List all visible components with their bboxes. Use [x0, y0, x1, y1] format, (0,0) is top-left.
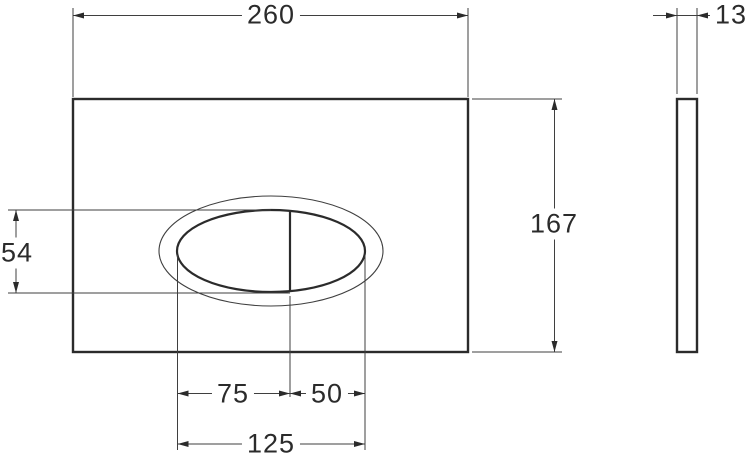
arrowhead-up [552, 99, 558, 110]
arrowhead-right [279, 391, 290, 397]
plate-height-label: 167 [525, 209, 583, 240]
arrowhead-left [178, 391, 189, 397]
arrowhead-down [13, 282, 19, 293]
plate-thickness-label: 13 [710, 0, 752, 31]
button-height-label: 54 [0, 238, 36, 269]
side-view [677, 99, 697, 352]
button-right-segment-label: 50 [306, 379, 348, 410]
plate-outline [73, 99, 468, 352]
dimension-plate-thickness [653, 8, 714, 94]
arrowhead-right [457, 13, 468, 19]
plate-side-outline [677, 99, 697, 352]
arrowhead-down [552, 341, 558, 352]
technical-drawing: 260 13 167 54 75 50 125 [0, 0, 752, 454]
button-total-width-label: 125 [242, 429, 300, 454]
arrowhead-left [73, 13, 84, 19]
arrowhead-left [178, 441, 189, 447]
arrowhead-right [354, 391, 365, 397]
arrowhead-left [290, 391, 301, 397]
button-left-segment-label: 75 [212, 379, 254, 410]
front-view [73, 99, 468, 352]
arrowhead-inward-right [666, 13, 677, 19]
arrowhead-right [354, 441, 365, 447]
arrowhead-inward-left [697, 13, 708, 19]
arrowhead-up [13, 210, 19, 221]
plate-width-label: 260 [242, 0, 300, 31]
drawing-lines [0, 0, 752, 454]
